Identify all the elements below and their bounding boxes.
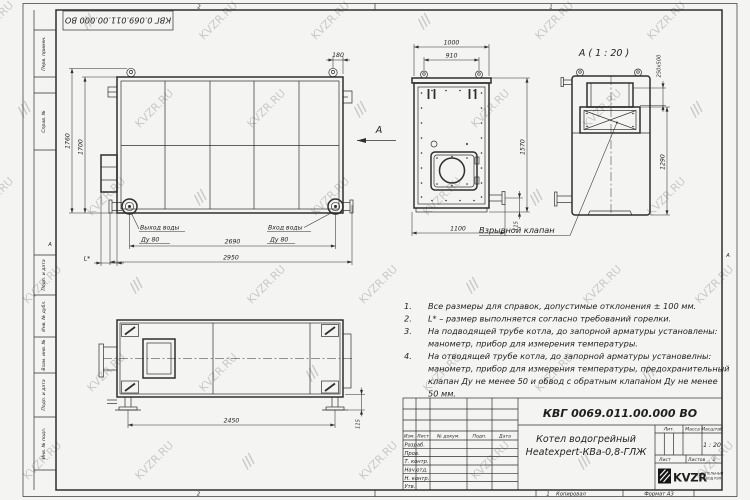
dim-1100: 1100 [450,226,466,233]
side-strip: Перв. примен. Справ. № Подп. и дата Инв.… [34,10,56,490]
col-data: Дата [498,434,511,440]
dim-arrowhead [96,262,101,265]
row-nachotd: Нач.отд. [405,468,428,474]
note-num: 3. [404,326,412,336]
listov-value: 1 [713,457,716,463]
dim-1290: 1290 [660,154,667,170]
view-a-dimensions: 250х500 1290 Взрывной клапан [479,54,670,236]
plan-view [99,320,352,410]
dim-1700: 1700 [78,139,85,155]
dim-arrowhead [518,193,521,198]
scale-value: 1 : 20 [703,442,721,449]
logo-caption-line2: ЗАВОД РЭП [701,477,722,481]
note-line: манометр, прибор для измерения температу… [428,339,638,349]
strip-inv-podl: Инв. № подл. [41,428,47,460]
dim-250x500: 250х500 [657,54,663,78]
view-a-title: А ( 1 : 20 ) [578,48,629,59]
dim-arrowhead [84,208,87,213]
dim-910: 910 [446,53,458,60]
logo-caption-line1: КОТЕЛЬНЫЙ [701,471,724,476]
dim-1760: 1760 [65,133,72,149]
strip-inv-dubl: Инв. № дубл. [41,300,47,331]
dim-arrowhead [424,59,429,62]
title-block: КВГ 0069.011.00.000 ВО Котел водогрейный… [403,398,724,490]
row-utv: Утв. [405,484,416,490]
drawing-sheet: 2 1 2 1 А А Копировал Формат А3 Перв. пр… [0,0,750,500]
listov-label: Листов [687,457,705,463]
row-nkontr: Н. контр. [405,476,430,482]
dim-arrowhead [71,208,74,213]
front-view [101,68,353,214]
strip-sprav-no: Справ. № [41,110,47,133]
drawing-page: { "watermark": { "text": "KVZR.RU" }, "s… [0,0,750,500]
side-view [412,71,505,212]
dim-arrowhead [666,210,669,215]
titleblock-doc-number: КВГ 0069.011.00.000 ВО [543,407,697,420]
dim-arrowhead [71,69,74,74]
zone-bottom-right: 1 [546,492,549,498]
section-arrow-label: А [375,125,383,136]
zone-top-left: 2 [197,5,200,11]
massa-header: Масса [685,427,700,433]
note-line: L* – размер выполняется согласно требова… [428,314,671,324]
dim-2950: 2950 [223,255,239,262]
dim-arrowhead [360,390,363,395]
dim-arrowhead [662,106,665,111]
zone-left: А [47,242,52,248]
dim-arrowhead [360,410,363,415]
row-razrab: Разраб. [405,443,425,449]
valve-label: Взрывной клапан [479,225,555,235]
kvzr-logo: KVZR КОТЕЛЬНЫЙ ЗАВОД РЭП [658,469,724,485]
zone-right: А [725,253,730,259]
col-izm: Изм. [404,434,415,440]
note-line: манометр, прибор для измерения температу… [428,364,730,374]
notes: 1. Все размеры для справок, допустимые о… [404,301,730,399]
strip-vzam-inv: Взам. инв. № [41,339,47,370]
lit-header: Лит. [663,427,675,433]
note-num: 1. [404,301,412,311]
row-prov: Пров. [405,451,420,457]
inlet-dn: Ду 80 [269,237,288,244]
dim-180: 180 [332,52,344,59]
dim-115-plan: 115 [356,418,362,429]
stamp-doc-number: КВГ 0.069.011.00.000 ВО [64,16,171,26]
top-stamp: КВГ 0.069.011.00.000 ВО [63,11,173,30]
list-label: Лист [658,457,671,463]
note-line: На подводящей трубе котла, до запорной а… [428,326,718,336]
dim-L: L* [84,256,91,263]
product-name-line2: Heatexpert-КВа-0,8-ГЛЖ [526,447,647,458]
dim-arrowhead [84,77,87,82]
outlet-dn: Ду 80 [140,237,159,244]
col-podp: Подп. [473,434,487,440]
strip-perv-primen: Перв. примен. [41,36,47,71]
dim-arrowhead [474,59,479,62]
strip-podp-data-1: Подп. и дата [41,259,47,290]
dim-arrowhead [518,212,521,217]
side-view-dimensions: 1000 910 1570 115 1100 [412,40,530,237]
row-tkontr: Т. контр. [405,459,429,465]
dim-arrowhead [414,46,419,49]
dim-arrowhead [526,78,529,83]
dim-arrowhead [484,46,489,49]
dim-arrowhead [330,424,335,427]
dim-arrowhead [412,232,417,235]
dim-arrowhead [662,83,665,88]
note-num: 2. [404,314,412,324]
note-line: 50 мм. [428,389,456,399]
strip-podp-data-2: Подп. и дата [41,379,47,410]
zone-top-right: 1 [549,5,552,11]
dim-arrowhead [130,245,135,248]
dim-arrowhead [347,261,352,264]
product-name-line1: Котел водогрейный [536,434,636,445]
note-line: Все размеры для справок, допустимые откл… [428,301,696,311]
dim-1570: 1570 [520,139,527,155]
col-doc: № докум. [436,434,460,440]
dim-2690: 2690 [225,239,241,246]
zone-bottom-left: 2 [197,492,200,498]
dim-arrowhead [128,424,133,427]
footer-format: Формат А3 [644,492,674,498]
front-view-dimensions: 1760 1700 180 2690 2950 L* Выход воды Ду… [65,52,397,266]
dim-arrowhead [666,107,669,112]
dim-arrowhead [331,245,336,248]
dim-arrowhead [526,207,529,212]
col-list: Лист [416,434,429,440]
view-a: А ( 1 : 20 ) [555,48,651,215]
outlet-label: Выход воды [140,225,180,232]
note-line: На отводящей трубе котла, до запорной ар… [428,351,712,361]
note-line: клапан Ду не менее 50 и обвод с обратным… [428,376,718,386]
note-num: 4. [404,351,412,361]
masshtab-header: Масштаб [701,427,723,433]
dim-1000: 1000 [444,40,460,47]
inlet-label: Вход воды [268,225,303,232]
footer-kopiroval: Копировал [556,492,586,498]
dim-2450: 2450 [224,418,240,425]
